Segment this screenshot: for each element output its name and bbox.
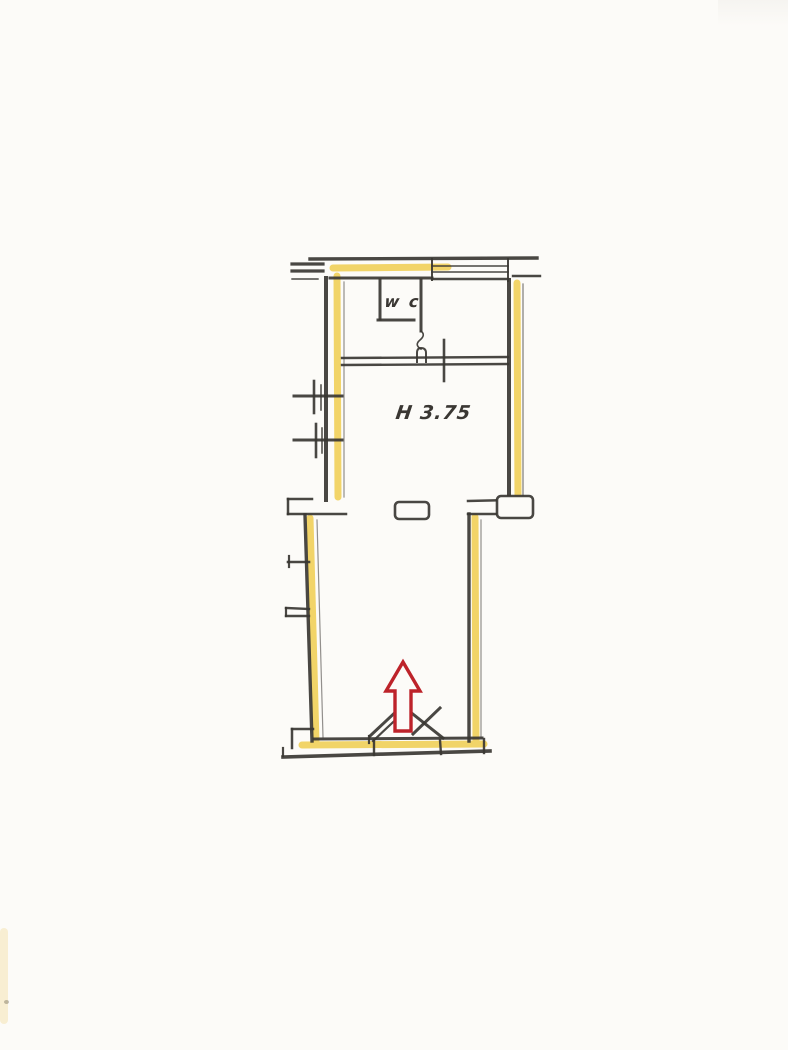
wc-room xyxy=(378,280,423,349)
left-wall-jog xyxy=(288,499,346,514)
highlight-lower-right-wall xyxy=(475,517,476,743)
pier-rect xyxy=(395,502,429,519)
ceiling-height-label: H 3.75 xyxy=(394,401,473,424)
wc-label: w c xyxy=(384,292,422,311)
entrance-arrow-icon xyxy=(386,662,420,731)
floor-plan-drawing: w c H 3.75 xyxy=(0,0,788,1050)
door-cross-tick xyxy=(413,708,440,734)
door-jamb-right xyxy=(440,740,441,754)
highlight-upper-left-wall xyxy=(337,276,338,497)
door-jamb-hook xyxy=(417,348,426,362)
wc-door-hinge-squiggle xyxy=(417,331,423,349)
interior-wall xyxy=(342,340,508,381)
highlight-top-wall xyxy=(333,267,448,268)
entrance-arrow-shape xyxy=(386,662,420,731)
highlight-upper-right-wall xyxy=(517,283,518,500)
column-rect xyxy=(497,496,533,518)
highlight-bottom-wall xyxy=(302,744,484,745)
scanned-page: w c H 3.75 xyxy=(0,0,788,1050)
